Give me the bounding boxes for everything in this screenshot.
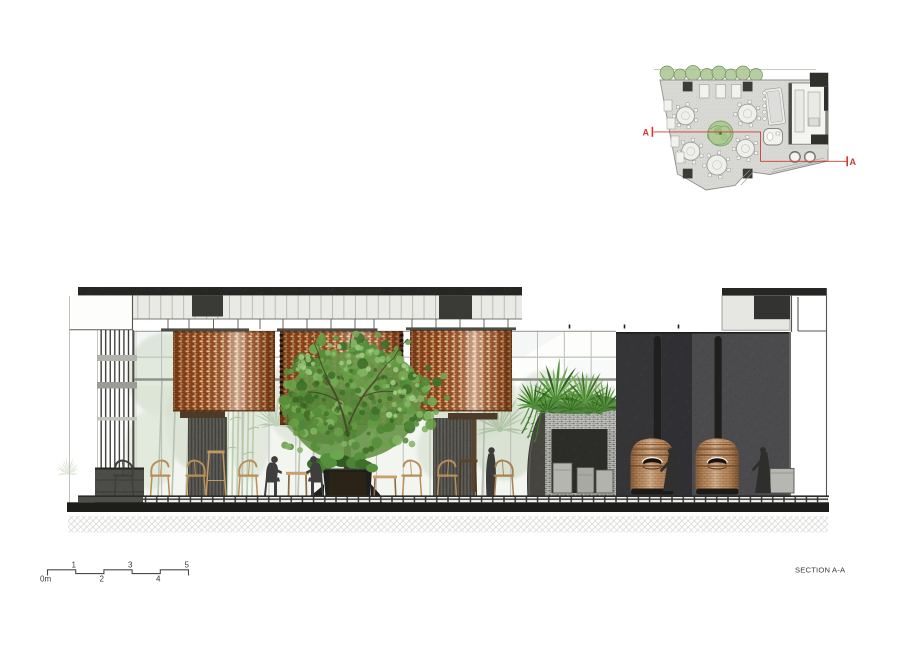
svg-text:4: 4 — [156, 575, 161, 584]
svg-text:3: 3 — [128, 561, 133, 570]
svg-text:0m: 0m — [40, 575, 51, 584]
svg-text:SECTION A-A: SECTION A-A — [795, 566, 846, 575]
svg-text:A: A — [643, 128, 650, 138]
svg-text:5: 5 — [185, 561, 190, 570]
svg-text:1: 1 — [72, 561, 77, 570]
svg-text:2: 2 — [100, 575, 105, 584]
svg-text:A: A — [850, 157, 857, 167]
